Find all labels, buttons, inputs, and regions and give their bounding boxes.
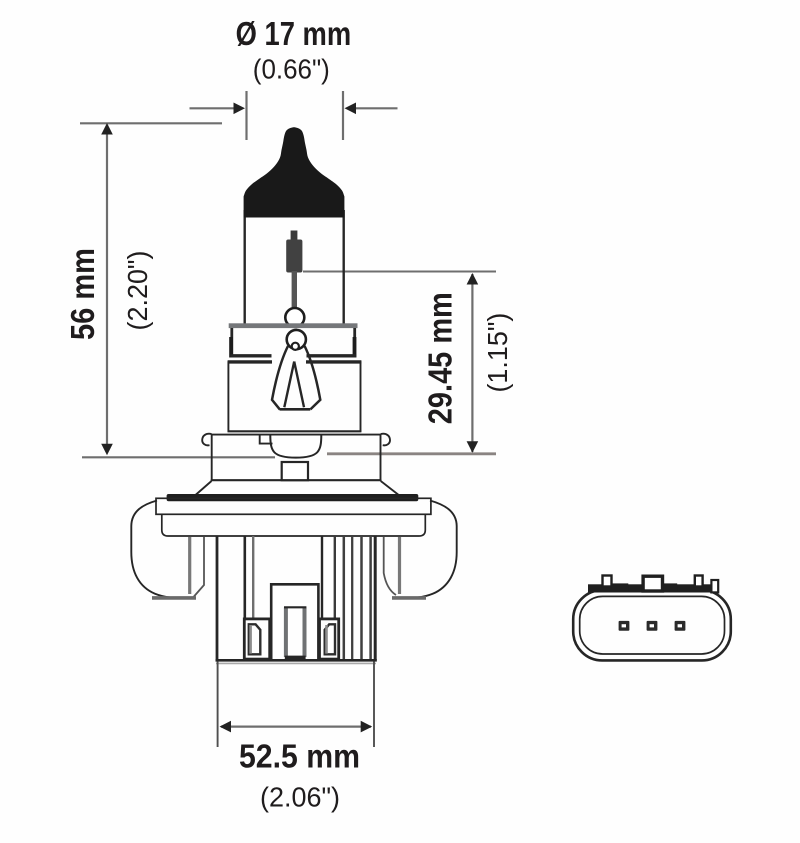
svg-text:29.45 mm: 29.45 mm bbox=[422, 292, 459, 424]
svg-text:52.5 mm: 52.5 mm bbox=[239, 738, 360, 775]
svg-text:(0.66"): (0.66") bbox=[253, 53, 330, 85]
svg-text:(2.06"): (2.06") bbox=[260, 781, 340, 813]
svg-text:(1.15"): (1.15") bbox=[481, 313, 513, 393]
svg-text:56 mm: 56 mm bbox=[65, 248, 102, 340]
svg-text:Ø 17 mm: Ø 17 mm bbox=[236, 16, 352, 53]
svg-text:(2.20"): (2.20") bbox=[121, 251, 153, 331]
